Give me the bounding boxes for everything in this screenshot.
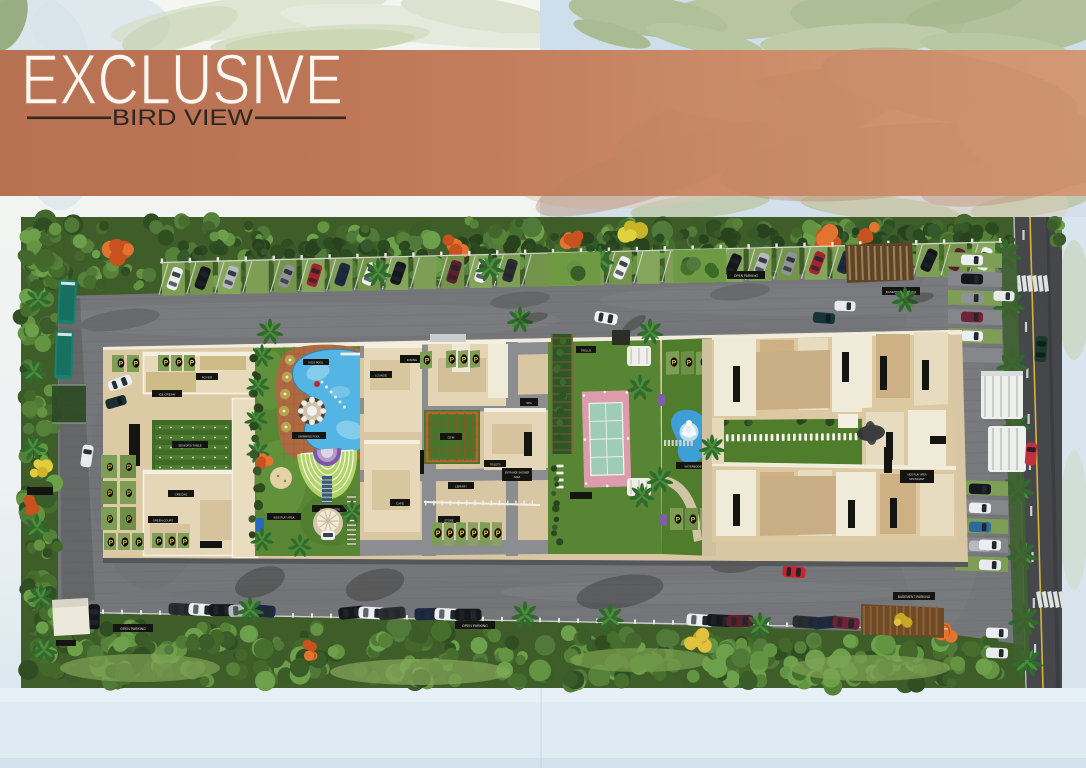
svg-text:BIRD VIEW: BIRD VIEW [112, 105, 254, 130]
svg-text:KIDS POOL: KIDS POOL [308, 361, 324, 365]
svg-text:BASEMENT PARKING: BASEMENT PARKING [898, 595, 931, 599]
svg-text:AREA: AREA [514, 476, 521, 479]
svg-text:DINING: DINING [407, 358, 418, 362]
svg-text:OPEN PARKING: OPEN PARKING [462, 624, 488, 628]
svg-text:FOYER: FOYER [202, 376, 213, 380]
svg-text:TOILETS: TOILETS [490, 463, 501, 467]
svg-text:ENTRANCE SHOWER: ENTRANCE SHOWER [505, 472, 530, 475]
svg-text:WATERBODIES: WATERBODIES [685, 465, 704, 469]
svg-text:SWIMMING POOL: SWIMMING POOL [298, 435, 320, 439]
svg-text:LIBRARY: LIBRARY [455, 485, 467, 489]
svg-text:SPA: SPA [526, 401, 532, 405]
svg-text:TRELLIS: TRELLIS [581, 349, 592, 353]
svg-text:LOUNGE: LOUNGE [375, 374, 387, 378]
svg-text:CAFE: CAFE [396, 502, 404, 506]
svg-text:OPEN PARKING: OPEN PARKING [120, 627, 146, 631]
svg-text:ICE CREAM: ICE CREAM [159, 393, 176, 397]
svg-text:STORE: STORE [444, 519, 454, 523]
svg-text:GREEN COURT: GREEN COURT [153, 519, 174, 523]
svg-text:SENIORS TABLE: SENIORS TABLE [178, 444, 202, 448]
svg-text:OPEN PARKING: OPEN PARKING [734, 274, 759, 278]
svg-text:KIDS PLAY AREA: KIDS PLAY AREA [274, 516, 295, 520]
svg-text:GYM: GYM [448, 436, 455, 440]
svg-text:CRECHE: CRECHE [175, 493, 188, 497]
svg-text:MINI BASKET: MINI BASKET [909, 478, 925, 481]
svg-text:KIDS PLAY AREA: KIDS PLAY AREA [907, 474, 927, 477]
